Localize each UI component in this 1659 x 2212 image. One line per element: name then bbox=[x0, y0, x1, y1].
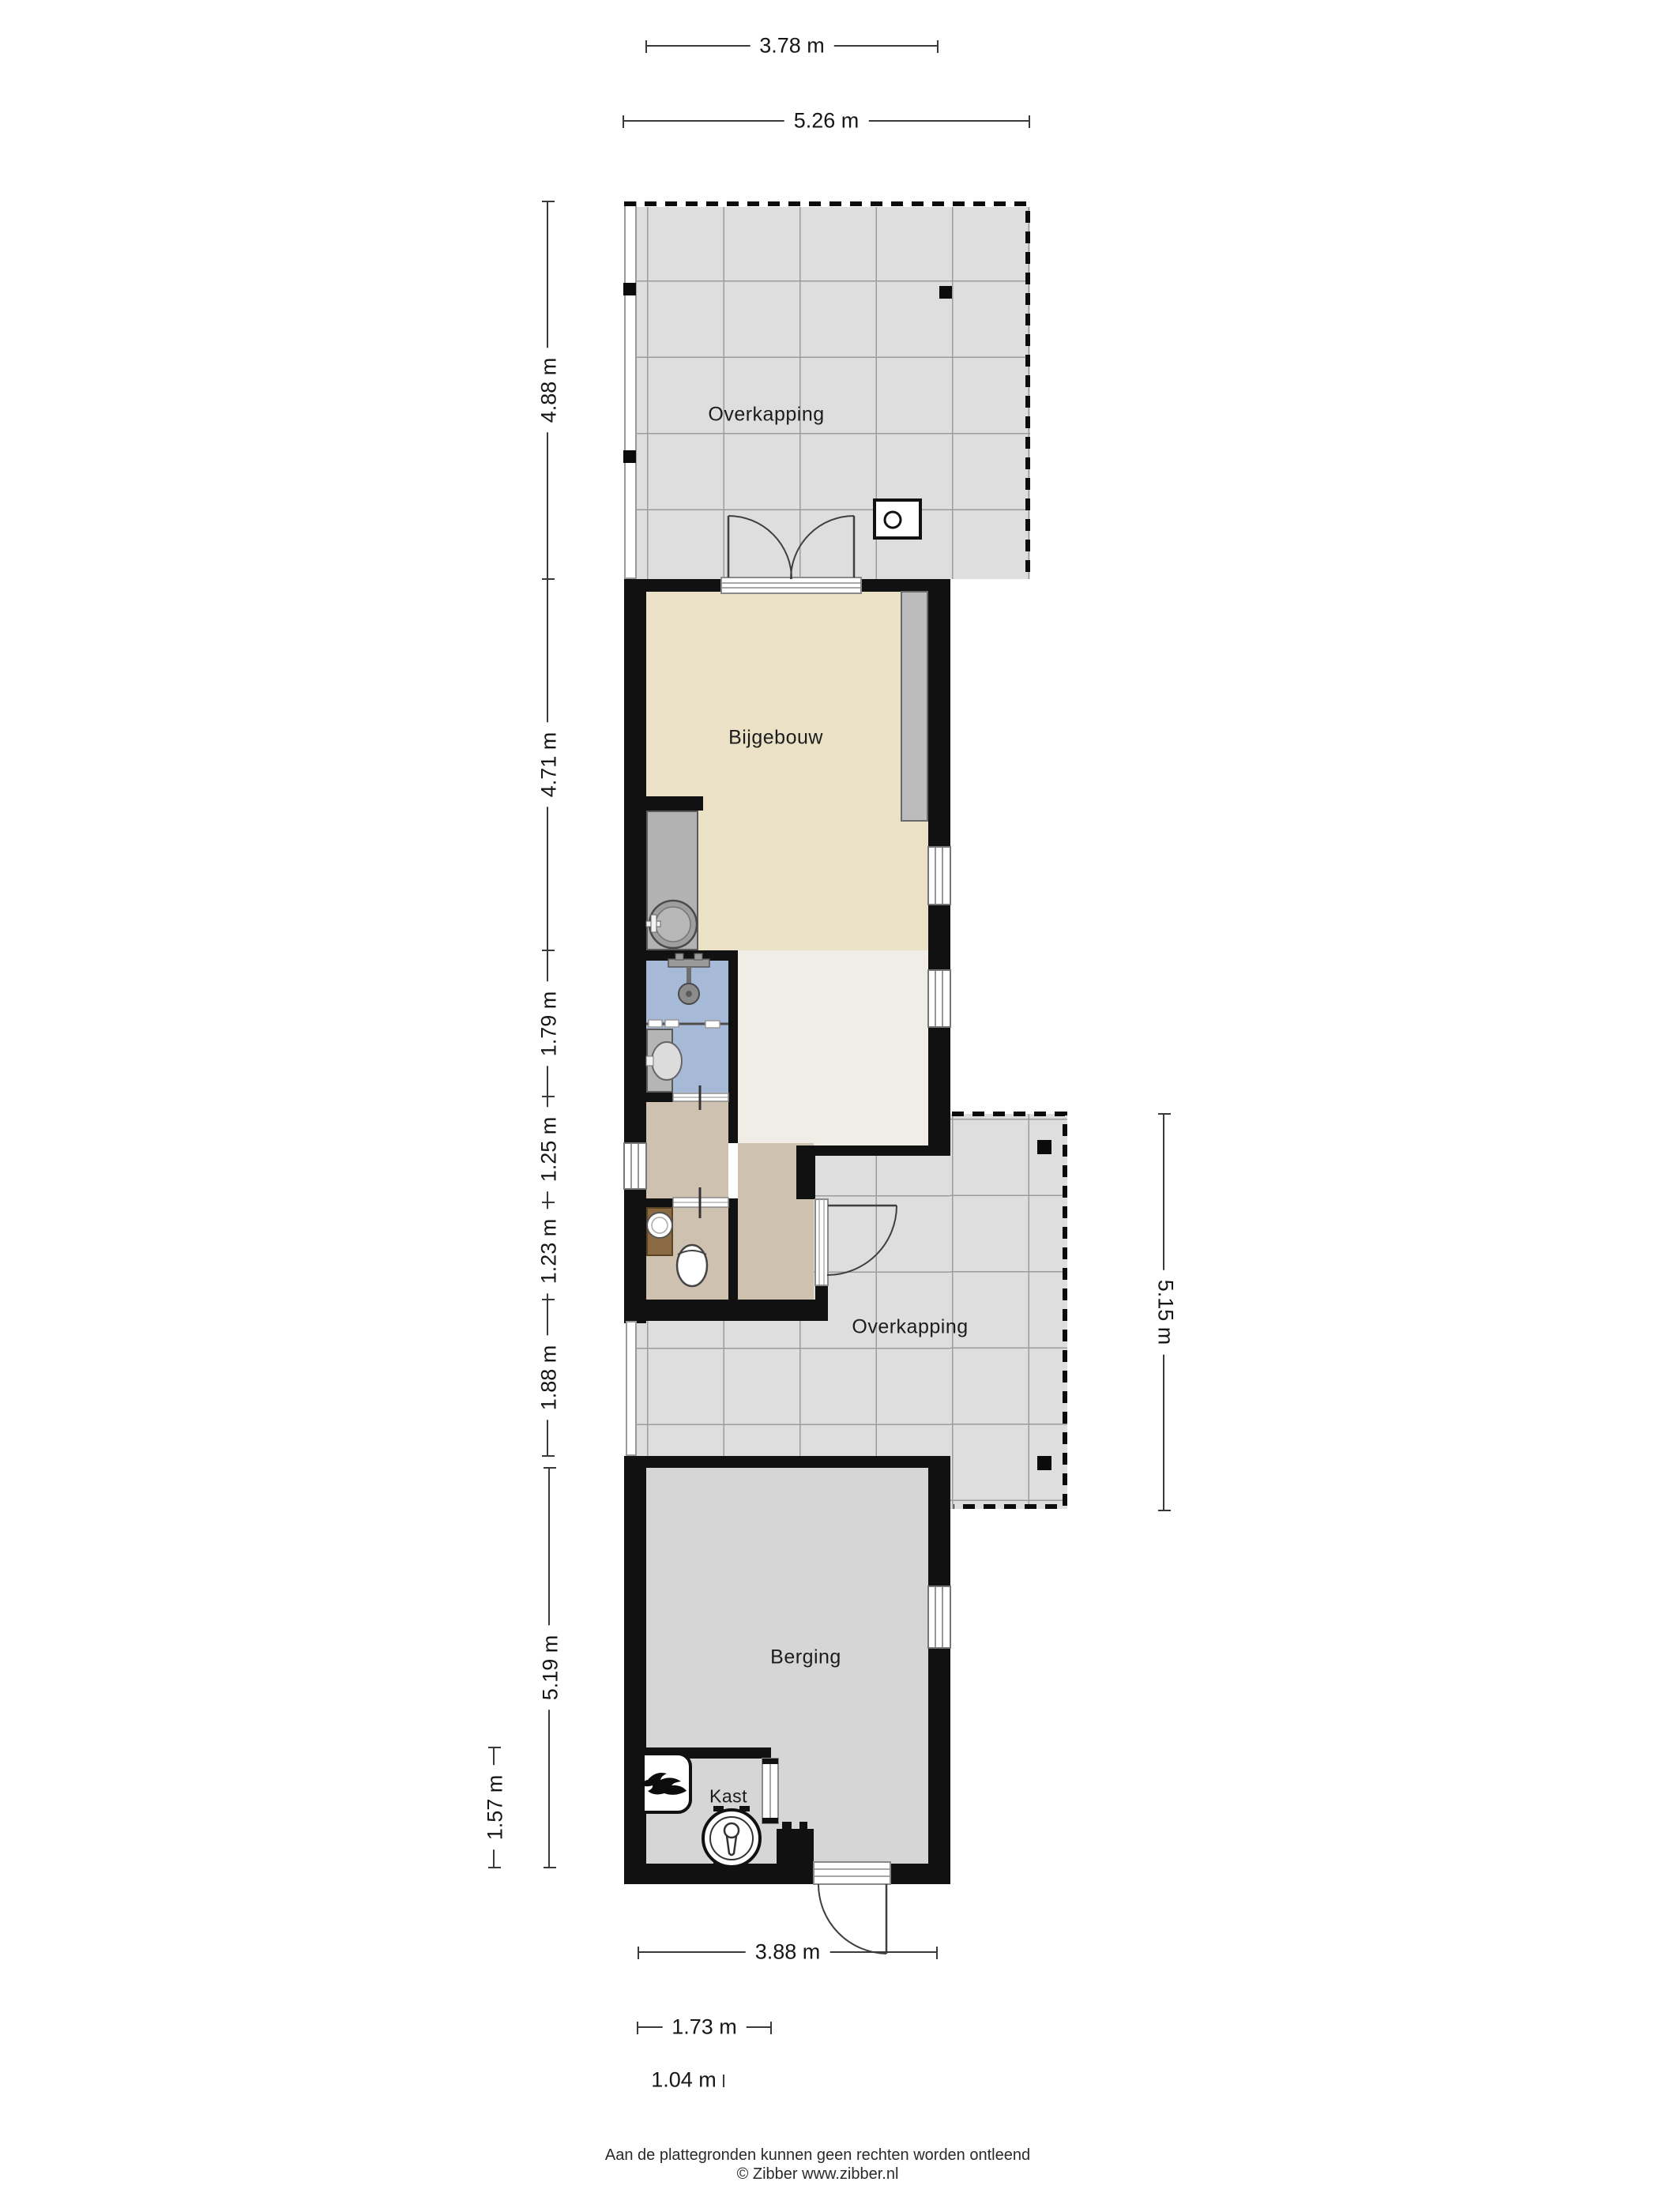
bathroom-vanity bbox=[646, 1029, 673, 1093]
room-label-kast: Kast bbox=[709, 1786, 747, 1808]
dimension-5-19: 5.19 m bbox=[548, 1468, 550, 1868]
wall-kitchen-stub bbox=[624, 796, 703, 811]
door-hardware bbox=[782, 1822, 792, 1830]
wall-shower-top bbox=[624, 950, 738, 961]
stove-unit bbox=[641, 1752, 692, 1814]
footer-disclaimer: Aan de plattegronden kunnen geen rechten… bbox=[605, 2146, 1030, 2184]
wall-berging-right bbox=[928, 1456, 950, 1884]
wall-bath-stub bbox=[624, 1093, 673, 1102]
dimension-1-25: 1.25 m bbox=[547, 1097, 548, 1202]
wall-partition bbox=[728, 950, 738, 1143]
canopy-post bbox=[1037, 1140, 1051, 1154]
hall-window bbox=[624, 1143, 646, 1189]
wall-berging-bottom-left bbox=[624, 1864, 814, 1884]
canopy-post bbox=[623, 283, 636, 295]
dimension-1-88: 1.88 m bbox=[547, 1300, 548, 1456]
shower-room-floor bbox=[646, 961, 728, 1024]
wall-door-stub-bottom bbox=[815, 1285, 828, 1321]
dimension-3-88: 3.88 m bbox=[638, 1951, 937, 1953]
dimension-1-23: 1.23 m bbox=[547, 1202, 548, 1300]
wall bbox=[928, 579, 950, 1156]
dimension-5-15: 5.15 m bbox=[1163, 1114, 1164, 1510]
canopy-post bbox=[939, 286, 952, 299]
wall-berging-top bbox=[624, 1456, 950, 1468]
overkapping-side-left-wall bbox=[626, 1321, 637, 1456]
toilet-vanity-wood bbox=[646, 1207, 673, 1256]
bijgebouw-south-floor bbox=[738, 950, 928, 1145]
dimension-1-57: 1.57 m bbox=[493, 1747, 495, 1868]
overkapping-top-left-wall bbox=[624, 201, 637, 579]
room-label-bijgebouw: Bijgebouw bbox=[728, 727, 823, 750]
canopy-post bbox=[623, 450, 636, 463]
dimension-3-78: 3.78 m bbox=[646, 45, 938, 47]
room-label-overkapping-side: Overkapping bbox=[852, 1316, 968, 1339]
dimension-4-71: 4.71 m bbox=[547, 579, 548, 950]
door-hardware bbox=[799, 1822, 807, 1830]
wall-kast-block bbox=[777, 1829, 814, 1864]
hall-floor-upper bbox=[646, 1100, 728, 1198]
dimension-1-79: 1.79 m bbox=[547, 950, 548, 1097]
room-label-overkapping-top: Overkapping bbox=[708, 404, 824, 427]
dimension-4-88: 4.88 m bbox=[547, 201, 548, 579]
wall bbox=[624, 579, 646, 1143]
wall-door-stub-top bbox=[796, 1145, 815, 1199]
overkapping-top-floor bbox=[637, 207, 1030, 579]
dimension-5-26: 5.26 m bbox=[623, 120, 1029, 122]
wall-berging-left bbox=[624, 1456, 646, 1884]
kitchen-counter bbox=[646, 811, 698, 950]
footer-line-1: Aan de plattegronden kunnen geen rechten… bbox=[605, 2146, 1030, 2165]
overkapping-side-floor-right bbox=[950, 1114, 1067, 1509]
wall-toilet-right bbox=[728, 1198, 738, 1300]
wall-south bbox=[796, 1145, 950, 1156]
wall-berging-bottom-right bbox=[890, 1864, 950, 1884]
dimension-1-73: 1.73 m bbox=[638, 2026, 771, 2028]
room-label-berging: Berging bbox=[770, 1646, 841, 1669]
floorplan-canvas: Overkapping Bijgebouw Overkapping Bergin… bbox=[0, 0, 1659, 2212]
dimension-1-04: 1.04 m bbox=[644, 2079, 724, 2081]
wall-hall-bottom bbox=[624, 1300, 828, 1321]
storage-strip bbox=[901, 591, 928, 822]
canopy-post bbox=[1037, 1456, 1051, 1470]
footer-line-2: © Zibber www.zibber.nl bbox=[605, 2165, 1030, 2184]
